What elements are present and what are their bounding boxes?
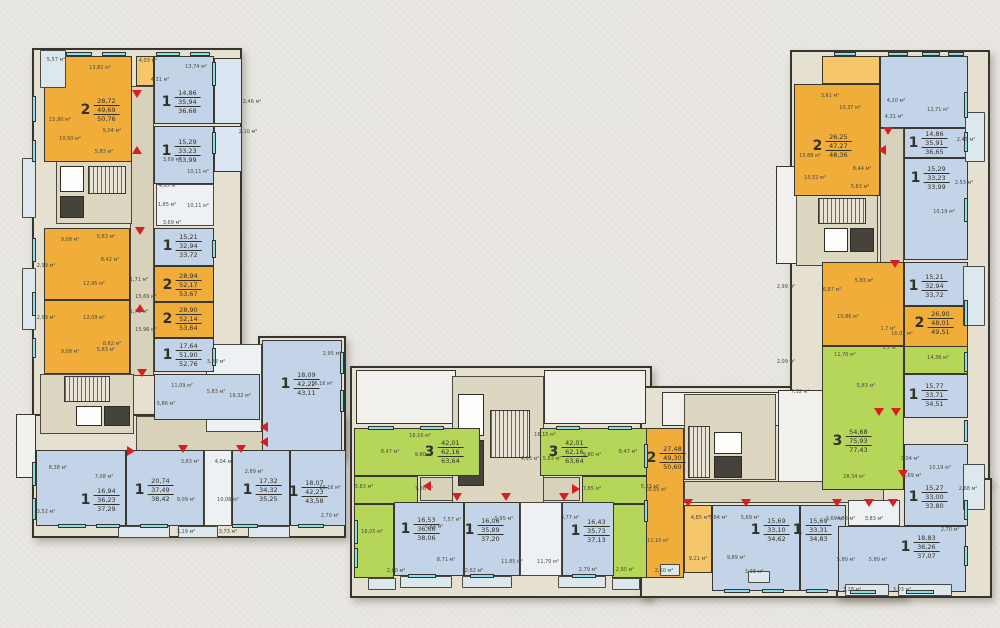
room-area-label: 3,69 м²: [163, 157, 182, 163]
entrance-arrow-icon: [888, 499, 898, 507]
unit-label: 115,2933,2333,99: [911, 165, 950, 191]
room-area-label: 5,80 м²: [837, 557, 856, 563]
window-strip: [724, 589, 750, 593]
room-area-label: 4,85 м²: [691, 515, 710, 521]
room-area-label: 4,03 м²: [521, 456, 540, 462]
entrance-arrow-icon: [559, 493, 569, 501]
unit-label: 354,6875,9377,43: [833, 428, 872, 454]
room-count: 1: [289, 485, 299, 499]
area-value: 53,64: [175, 323, 201, 332]
unit-label: 115,2132,9433,72: [163, 233, 202, 259]
window-strip: [556, 426, 580, 430]
room-area-label: 9,21 м²: [689, 556, 708, 562]
area-value: 17,32: [255, 477, 281, 485]
apartment-unit-21[interactable]: [822, 56, 880, 84]
area-value: 47,27: [825, 141, 851, 150]
area-value: 62,16: [437, 447, 463, 456]
window-strip: [32, 238, 36, 262]
area-value: 75,93: [845, 436, 871, 445]
room-area-label: 3,03 м²: [893, 587, 912, 593]
room-area-label: 8,71 м²: [437, 557, 456, 563]
area-value: 33,80: [921, 501, 947, 510]
room-area-label: 2,62 м²: [465, 568, 484, 574]
stairs-icon: [64, 376, 110, 402]
unit-label: 226,9048,0149,51: [915, 310, 954, 336]
room-area-label: 3,28 м²: [843, 587, 862, 593]
room-area-label: 11,70 м²: [834, 352, 856, 358]
area-value: 35,89: [477, 525, 503, 534]
window-strip: [354, 548, 358, 568]
room-area-label: 3,52 м²: [37, 509, 56, 515]
unit-label: 116,9436,2337,29: [81, 487, 120, 513]
window-strip: [964, 300, 968, 326]
room-area-label: 16,05 м²: [361, 529, 383, 535]
room-area-label: 9,80 м²: [415, 452, 434, 458]
area-value: 37,13: [583, 535, 609, 544]
unit-areas: 18,0742,2343,58: [301, 479, 327, 505]
window-strip: [608, 426, 632, 430]
window-strip: [806, 589, 828, 593]
room-area-label: 9,08 м²: [61, 349, 80, 355]
elevator-shaft: [104, 406, 130, 426]
room-area-label: 15,90 м²: [49, 117, 71, 123]
balcony: [612, 578, 640, 590]
unit-label: 116,4335,7337,13: [571, 518, 610, 544]
room-area-label: 2,45 м²: [957, 137, 976, 143]
room-count: 1: [243, 483, 253, 497]
room-area-label: 1,71 м²: [130, 277, 149, 283]
room-area-label: 3,69 м²: [163, 220, 182, 226]
area-value: 52,14: [175, 314, 201, 323]
room-area-label: 3,61 м²: [821, 93, 840, 99]
entrance-arrow-icon: [260, 437, 268, 447]
room-area-label: 7,08 м²: [95, 474, 114, 480]
room-count: 2: [81, 103, 91, 117]
room-count: 2: [163, 312, 173, 326]
unit-label: 120,7437,4938,42: [135, 477, 174, 503]
room-count: 1: [135, 483, 145, 497]
room-area-label: 2,46 м²: [243, 99, 262, 105]
room-area-label: 7,57 м²: [443, 517, 462, 523]
floor-plan-canvas: 228,7249,6950,76114,8635,9436,68115,2933…: [0, 0, 1000, 628]
light-well: [356, 370, 456, 424]
balcony: [40, 50, 66, 88]
room-area-label: 13,82 м²: [89, 65, 111, 71]
area-value: 26,90: [927, 310, 953, 318]
room-area-label: 2,79 м²: [579, 567, 598, 573]
area-value: 38,42: [147, 494, 173, 503]
window-strip: [572, 574, 596, 578]
room-area-label: 11,70 м²: [537, 559, 559, 565]
unit-areas: 14,8635,9436,68: [174, 89, 200, 115]
room-area-label: 4,31 м²: [885, 114, 904, 120]
unit-areas: 15,2733,0033,80: [921, 484, 947, 510]
window-strip: [834, 52, 856, 56]
area-value: 34,32: [255, 485, 281, 494]
area-value: 26,25: [825, 133, 851, 141]
area-value: 34,62: [763, 534, 789, 543]
elevator-shaft: [60, 166, 84, 192]
area-value: 35,73: [583, 526, 609, 535]
window-strip: [32, 498, 36, 520]
room-area-label: 16,16 м²: [319, 485, 341, 491]
area-value: 49,51: [927, 327, 953, 336]
room-area-label: 8,38 м²: [49, 465, 68, 471]
apartment-unit-2[interactable]: [214, 58, 242, 124]
room-area-label: 2,89 м²: [245, 469, 264, 475]
area-value: 27,48: [659, 445, 685, 453]
unit-areas: 17,3234,3235,25: [255, 477, 281, 503]
unit-label: 115,2733,0033,80: [909, 484, 948, 510]
room-count: 1: [162, 95, 172, 109]
room-area-label: 2,99 м²: [777, 284, 796, 290]
area-value: 53,67: [175, 289, 201, 298]
elevator-shaft: [714, 432, 742, 454]
area-value: 16,94: [93, 487, 119, 495]
balcony: [368, 578, 396, 590]
unit-areas: 42,0162,1663,64: [437, 439, 463, 465]
area-value: 36,68: [174, 106, 200, 115]
room-area-label: 10,19 м²: [933, 209, 955, 215]
room-area-label: 5,83 м²: [543, 456, 562, 462]
room-area-label: 15,88 м²: [799, 153, 821, 159]
room-area-label: 2,95 м²: [323, 351, 342, 357]
area-value: 43,58: [301, 496, 327, 505]
window-strip: [964, 352, 968, 372]
unit-areas: 15,2132,9433,72: [921, 273, 947, 299]
area-value: 52,76: [175, 359, 201, 368]
window-strip: [66, 52, 92, 56]
room-count: 1: [909, 388, 919, 402]
area-value: 37,49: [147, 485, 173, 494]
entrance-arrow-icon: [883, 127, 893, 135]
room-area-label: 8,42 м²: [101, 257, 120, 263]
area-value: 18,83: [913, 534, 939, 542]
area-value: 38,06: [413, 533, 439, 542]
area-value: 37,07: [913, 551, 939, 560]
room-area-label: 4,05 м²: [159, 183, 178, 189]
area-value: 33,72: [921, 290, 947, 299]
area-value: 28,94: [175, 272, 201, 280]
apartment-unit-27[interactable]: [822, 346, 904, 490]
room-area-label: 15,69 м²: [135, 294, 157, 300]
window-strip: [964, 420, 968, 442]
window-strip: [190, 52, 210, 56]
unit-areas: 14,8635,9136,65: [921, 130, 947, 156]
entrance-arrow-icon: [260, 422, 268, 432]
room-area-label: 2,80 м²: [387, 568, 406, 574]
room-area-label: 16,16 м²: [311, 381, 333, 387]
unit-label: 114,8635,9436,68: [162, 89, 201, 115]
room-area-label: 5,83 м²: [425, 524, 444, 530]
room-area-label: 1,7 м²: [882, 345, 897, 351]
unit-areas: 18,8336,2637,07: [913, 534, 939, 560]
window-strip: [368, 426, 394, 430]
area-value: 49,69: [93, 105, 119, 114]
area-value: 15,21: [175, 233, 201, 241]
window-strip: [948, 52, 964, 56]
room-area-label: 9,89 м²: [727, 555, 746, 561]
room-area-label: 3,19 м²: [177, 529, 196, 535]
room-area-label: 5,04 м²: [103, 128, 122, 134]
window-strip: [156, 52, 180, 56]
room-count: 1: [901, 540, 911, 554]
unit-areas: 26,9048,0149,51: [927, 310, 953, 336]
apartment-unit-5[interactable]: [44, 228, 130, 300]
area-value: 34,83: [805, 534, 831, 543]
area-value: 15,29: [923, 165, 949, 173]
room-area-label: 10,86 м²: [837, 314, 859, 320]
apartment-unit-13[interactable]: [354, 476, 418, 504]
area-value: 35,25: [255, 494, 281, 503]
room-area-label: 5,83 м²: [207, 389, 226, 395]
window-strip: [32, 292, 36, 316]
unit-areas: 16,4335,7337,13: [583, 518, 609, 544]
area-value: 50,76: [93, 114, 119, 123]
room-count: 1: [751, 523, 761, 537]
window-strip: [232, 524, 258, 528]
room-area-label: 16,55 м²: [645, 487, 667, 493]
unit-areas: 15,2132,9433,72: [175, 233, 201, 259]
area-value: 54,68: [845, 428, 871, 436]
area-value: 43,11: [293, 388, 319, 397]
unit-areas: 20,7437,4938,42: [147, 477, 173, 503]
room-area-label: 15,52 м²: [804, 175, 826, 181]
room-area-label: 2,99 м²: [37, 315, 56, 321]
entrance-arrow-icon: [683, 499, 693, 507]
area-value: 16,43: [583, 518, 609, 526]
area-value: 18,09: [293, 371, 319, 379]
entrance-arrow-icon: [137, 369, 147, 377]
room-area-label: 4,03 м²: [837, 516, 856, 522]
area-value: 28,72: [93, 97, 119, 105]
room-area-label: 8,62 м²: [103, 341, 122, 347]
window-strip: [32, 96, 36, 122]
room-count: 2: [813, 139, 823, 153]
stairs-icon: [688, 426, 710, 478]
room-area-label: 16,02 м²: [891, 331, 913, 337]
unit-label: 114,8635,9136,65: [909, 130, 948, 156]
area-value: 35,91: [921, 138, 947, 147]
area-value: 36,65: [921, 147, 947, 156]
unit-areas: 15,6933,1034,62: [763, 517, 789, 543]
area-value: 42,01: [437, 439, 463, 447]
window-strip: [762, 589, 784, 593]
room-area-label: 2,99 м²: [37, 263, 56, 269]
room-area-label: 28,34 м²: [843, 474, 865, 480]
area-value: 15,29: [174, 138, 200, 146]
room-area-label: 5,83 м²: [857, 383, 876, 389]
room-area-label: 10,06 м²: [217, 497, 239, 503]
room-area-label: 16,15 м²: [534, 432, 556, 438]
room-count: 1: [163, 348, 173, 362]
room-area-label: 11,10 м²: [647, 538, 669, 544]
area-value: 50,60: [659, 462, 685, 471]
entrance-arrow-icon: [135, 227, 145, 235]
room-count: 2: [915, 316, 925, 330]
area-value: 37,29: [93, 504, 119, 513]
room-area-label: 5,57 м²: [47, 57, 66, 63]
room-area-label: 11,85 м²: [501, 559, 523, 565]
room-area-label: 3,83 м²: [207, 359, 226, 365]
room-area-label: 4,31 м²: [151, 77, 170, 83]
room-area-label: 10,50 м²: [59, 136, 81, 142]
room-area-label: 8,47 м²: [619, 449, 638, 455]
entrance-arrow-icon: [135, 304, 145, 312]
area-value: 36,26: [913, 542, 939, 551]
room-area-label: 10,11 м²: [187, 169, 209, 175]
room-area-label: 2,60 м²: [655, 568, 674, 574]
area-value: 32,94: [921, 281, 947, 290]
room-count: 1: [81, 493, 91, 507]
apartment-unit-13[interactable]: [354, 504, 394, 578]
window-strip: [964, 92, 968, 118]
room-count: 1: [909, 279, 919, 293]
room-area-label: 5,69 м²: [741, 515, 760, 521]
room-area-label: 2,10 м²: [239, 129, 258, 135]
room-count: 1: [465, 523, 475, 537]
area-value: 33,23: [174, 146, 200, 155]
window-strip: [408, 574, 436, 578]
area-value: 14,86: [921, 130, 947, 138]
room-area-label: 2,70 м²: [941, 527, 960, 533]
area-value: 15,27: [921, 484, 947, 492]
area-value: 49,30: [659, 453, 685, 462]
area-value: 33,00: [921, 492, 947, 501]
area-value: 63,64: [437, 456, 463, 465]
window-strip: [212, 240, 216, 258]
room-count: 1: [281, 377, 291, 391]
unit-areas: 54,6875,9377,43: [845, 428, 871, 454]
window-strip: [644, 500, 648, 522]
room-area-label: 5,80 м²: [869, 557, 888, 563]
window-strip: [212, 62, 216, 86]
window-strip: [32, 462, 36, 486]
entrance-arrow-icon: [891, 408, 901, 416]
room-count: 1: [163, 239, 173, 253]
unit-areas: 28,7249,6950,76: [93, 97, 119, 123]
window-strip: [964, 546, 968, 566]
room-area-label: 4,03 м²: [139, 58, 158, 64]
area-value: 35,94: [174, 97, 200, 106]
room-area-label: 12,09 м²: [83, 315, 105, 321]
area-value: 33,99: [923, 182, 949, 191]
window-strip: [96, 524, 120, 528]
room-area-label: 5,83 м²: [355, 484, 374, 490]
area-value: 33,23: [923, 173, 949, 182]
window-strip: [964, 198, 968, 222]
entrance-arrow-icon: [832, 499, 842, 507]
room-area-label: 6,87 м²: [823, 287, 842, 293]
unit-label: 227,4849,3050,60: [647, 445, 686, 471]
room-area-label: 3,83 м²: [181, 459, 200, 465]
stairs-icon: [490, 410, 530, 458]
room-area-label: 8,47 м²: [381, 449, 400, 455]
area-value: 15,21: [921, 273, 947, 281]
room-area-label: 5,83 м²: [97, 347, 116, 353]
entrance-arrow-icon: [452, 493, 462, 501]
room-area-label: 5,86 м²: [157, 401, 176, 407]
window-strip: [888, 52, 908, 56]
unit-label: 228,9052,1453,64: [163, 306, 202, 332]
area-value: 48,36: [825, 150, 851, 159]
room-area-label: 7,85 м²: [583, 486, 602, 492]
unit-label: 115,2132,9433,72: [909, 273, 948, 299]
unit-label: 228,9452,1753,67: [163, 272, 202, 298]
window-strip: [58, 524, 86, 528]
elevator-shaft: [824, 228, 848, 252]
entrance-arrow-icon: [572, 484, 580, 494]
entrance-arrow-icon: [878, 145, 886, 155]
window-strip: [470, 574, 494, 578]
window-strip: [298, 524, 324, 528]
apartment-unit-6[interactable]: [44, 300, 130, 374]
room-area-label: 15,96 м²: [135, 327, 157, 333]
room-area-label: 2,09 м²: [777, 359, 796, 365]
area-value: 33,72: [175, 250, 201, 259]
window-strip: [340, 390, 344, 412]
window-strip: [212, 132, 216, 154]
room-area-label: 5,83 м²: [95, 149, 114, 155]
room-area-label: 4,20 м²: [887, 98, 906, 104]
room-count: 2: [163, 278, 173, 292]
elevator-shaft: [714, 456, 742, 478]
unit-areas: 28,9452,1753,67: [175, 272, 201, 298]
entrance-arrow-icon: [741, 499, 751, 507]
entrance-arrow-icon: [236, 445, 246, 453]
area-value: 33,71: [921, 390, 947, 399]
room-count: 1: [911, 171, 921, 185]
unit-areas: 16,9436,2337,29: [93, 487, 119, 513]
room-area-label: 2,68 м²: [959, 486, 978, 492]
room-area-label: 5,83 м²: [97, 234, 116, 240]
window-strip: [922, 52, 940, 56]
room-count: 3: [833, 434, 843, 448]
area-value: 42,01: [561, 439, 587, 447]
balcony: [22, 158, 36, 218]
unit-areas: 27,4849,3050,60: [659, 445, 685, 471]
unit-label: 115,7733,7134,51: [909, 382, 948, 408]
room-area-label: 7,32 м²: [791, 389, 810, 395]
entrance-arrow-icon: [890, 260, 900, 268]
unit-label: 117,3234,3235,25: [243, 477, 282, 503]
area-value: 28,90: [175, 306, 201, 314]
room-count: 1: [909, 490, 919, 504]
area-value: 33,10: [763, 525, 789, 534]
room-area-label: 3,83 м²: [865, 516, 884, 522]
room-area-label: 2,70 м²: [321, 513, 340, 519]
area-value: 15,69: [763, 517, 789, 525]
room-area-label: 1,85 м²: [158, 202, 177, 208]
area-value: 34,51: [921, 399, 947, 408]
unit-areas: 15,2933,2333,99: [923, 165, 949, 191]
entrance-arrow-icon: [132, 146, 142, 154]
room-area-label: 3,73 м²: [219, 529, 238, 535]
window-strip: [354, 520, 358, 544]
room-area-label: 3,03 м²: [745, 569, 764, 575]
area-value: 17,64: [175, 342, 201, 350]
room-count: 2: [647, 451, 657, 465]
unit-label: 228,7249,6950,76: [81, 97, 120, 123]
room-area-label: 2,95 м²: [616, 567, 635, 573]
unit-areas: 15,7733,7134,51: [921, 382, 947, 408]
entrance-arrow-icon: [132, 90, 142, 98]
elevator-shaft: [76, 406, 102, 426]
window-strip: [140, 524, 168, 528]
room-area-label: 8,77 м²: [561, 515, 580, 521]
elevator-shaft: [60, 196, 84, 218]
room-area-label: 4,04 м²: [215, 459, 234, 465]
